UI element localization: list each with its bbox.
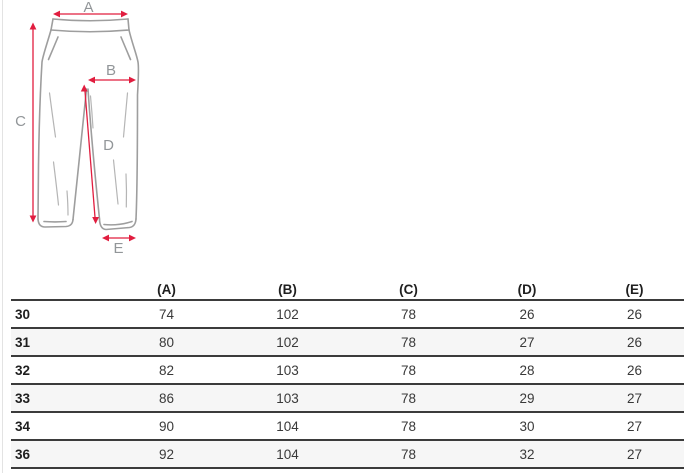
value-cell: 90 (106, 412, 227, 440)
value-cell: 27 (585, 384, 684, 412)
right-pocket-line (121, 37, 131, 60)
value-cell: 104 (227, 412, 348, 440)
waistband-left-edge (51, 19, 53, 30)
arrowhead-left-icon (102, 235, 109, 242)
value-cell: 78 (348, 440, 469, 468)
column-header-a: (A) (106, 280, 227, 300)
dimension-label-a: A (83, 0, 93, 16)
pants-outline (38, 19, 139, 230)
left-shin-crease-2 (67, 191, 68, 215)
left-pocket-line (49, 37, 59, 60)
table-row-size-31: 31 80 102 78 27 26 (11, 328, 684, 356)
value-cell: 29 (469, 384, 585, 412)
value-cell: 26 (469, 300, 585, 328)
arrowhead-down-icon (92, 217, 99, 224)
right-hem-inner-line (104, 222, 132, 225)
value-cell: 104 (227, 440, 348, 468)
table-row-size-30: 30 74 102 78 26 26 (11, 300, 684, 328)
size-cell: 34 (11, 412, 106, 440)
right-shin-crease-1 (114, 160, 119, 204)
size-column-header (11, 280, 106, 300)
arrowhead-up-icon (30, 23, 37, 30)
value-cell: 27 (585, 440, 684, 468)
table-row-size-32: 32 82 103 78 28 26 (11, 356, 684, 384)
size-guide-page: { "diagram": { "type": "pants-measuremen… (0, 0, 690, 473)
column-header-c: (C) (348, 280, 469, 300)
waistband-right-edge (128, 19, 129, 30)
size-cell: 30 (11, 300, 106, 328)
dimension-label-d: D (103, 137, 114, 154)
value-cell: 103 (227, 356, 348, 384)
dimension-label-b: B (106, 62, 116, 79)
value-cell: 74 (106, 300, 227, 328)
value-cell: 28 (469, 356, 585, 384)
value-cell: 102 (227, 328, 348, 356)
table-row-size-33: 33 86 103 78 29 27 (11, 384, 684, 412)
value-cell: 26 (585, 300, 684, 328)
value-cell: 78 (348, 384, 469, 412)
arrowhead-right-icon (121, 11, 128, 18)
left-thigh-crease (50, 93, 56, 137)
value-cell: 78 (348, 328, 469, 356)
arrowhead-up-icon (81, 85, 88, 92)
column-header-d: (D) (469, 280, 585, 300)
value-cell: 27 (585, 412, 684, 440)
arrowhead-left-icon (88, 77, 95, 84)
left-hem (38, 219, 73, 227)
right-thigh-crease (124, 93, 128, 137)
column-header-e: (E) (585, 280, 684, 300)
dimension-label-e: E (113, 240, 123, 257)
value-cell: 26 (585, 328, 684, 356)
table-row-size-36: 36 92 104 78 32 27 (11, 440, 684, 468)
left-shin-crease-1 (54, 162, 59, 205)
column-header-b: (B) (227, 280, 348, 300)
value-cell: 32 (469, 440, 585, 468)
value-cell: 103 (227, 384, 348, 412)
value-cell: 78 (348, 412, 469, 440)
size-chart-table: (A) (B) (C) (D) (E) 30 74 102 78 26 26 3… (11, 280, 684, 469)
value-cell: 102 (227, 300, 348, 328)
waistband-top-line (53, 19, 128, 21)
dimension-arrow-c (30, 23, 37, 223)
table-header-row: (A) (B) (C) (D) (E) (11, 280, 684, 300)
value-cell: 78 (348, 300, 469, 328)
value-cell: 92 (106, 440, 227, 468)
arrowhead-right-icon (129, 77, 136, 84)
size-cell: 32 (11, 356, 106, 384)
value-cell: 86 (106, 384, 227, 412)
value-cell: 78 (348, 356, 469, 384)
dimension-label-c: C (15, 113, 26, 130)
size-cell: 31 (11, 328, 106, 356)
pants-diagram-svg: A B C D E (0, 0, 160, 265)
arrowhead-down-icon (30, 216, 37, 223)
size-cell: 36 (11, 440, 106, 468)
value-cell: 80 (106, 328, 227, 356)
arrowhead-right-icon (129, 235, 136, 242)
waistband-bottom-line (51, 30, 129, 32)
size-cell: 33 (11, 384, 106, 412)
arrowhead-left-icon (53, 11, 60, 18)
value-cell: 26 (585, 356, 684, 384)
value-cell: 27 (469, 328, 585, 356)
value-cell: 82 (106, 356, 227, 384)
table-row-size-34: 34 90 104 78 30 27 (11, 412, 684, 440)
left-inner-seam (73, 89, 87, 220)
pants-measurement-diagram: A B C D E (0, 0, 160, 265)
value-cell: 30 (469, 412, 585, 440)
